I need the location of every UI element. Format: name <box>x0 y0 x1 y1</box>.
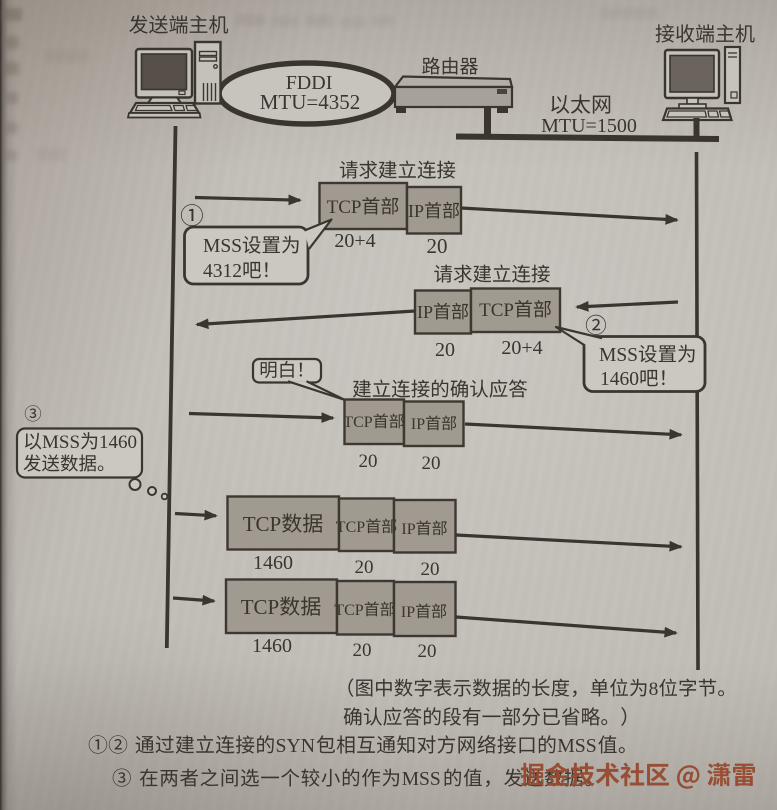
svg-text:TCP: TCP <box>334 602 363 619</box>
svg-text:1460: 1460 <box>252 635 292 657</box>
svg-text:TCP: TCP <box>343 414 372 431</box>
svg-text:MTU=4352: MTU=4352 <box>260 90 361 114</box>
svg-text:TCP: TCP <box>479 300 514 321</box>
svg-text:20: 20 <box>421 559 440 580</box>
svg-text:IP: IP <box>411 416 425 433</box>
svg-text:8: 8 <box>649 679 659 700</box>
svg-text:20: 20 <box>422 453 441 474</box>
svg-text:20: 20 <box>355 557 374 578</box>
svg-text:20+4: 20+4 <box>334 230 375 252</box>
svg-text:IP: IP <box>401 521 415 538</box>
svg-text:20: 20 <box>359 451 378 472</box>
svg-text:IP: IP <box>408 201 424 221</box>
svg-text:20: 20 <box>418 641 437 662</box>
svg-text:1460: 1460 <box>600 369 639 390</box>
svg-text:TCP: TCP <box>336 519 365 536</box>
svg-text:20: 20 <box>427 234 448 258</box>
svg-text:MTU=1500: MTU=1500 <box>541 115 637 137</box>
svg-text:MSS: MSS <box>42 432 80 453</box>
svg-text:SYN: SYN <box>276 735 316 757</box>
svg-text:TCP: TCP <box>243 512 282 536</box>
svg-text:20: 20 <box>435 339 455 361</box>
svg-text:MSS: MSS <box>557 735 597 757</box>
svg-text:MSS: MSS <box>402 769 441 790</box>
svg-text:20+4: 20+4 <box>501 337 542 359</box>
svg-text:1460: 1460 <box>253 552 293 574</box>
svg-text:TCP: TCP <box>241 595 280 619</box>
svg-text:IP: IP <box>401 604 415 621</box>
svg-text:MSS: MSS <box>599 345 638 366</box>
svg-text:20: 20 <box>353 640 372 661</box>
svg-text:TCP: TCP <box>327 197 362 218</box>
svg-text:MSS: MSS <box>203 236 242 257</box>
svg-text:1460: 1460 <box>99 432 137 453</box>
svg-text:4312: 4312 <box>203 261 242 282</box>
svg-text:IP: IP <box>417 302 433 322</box>
